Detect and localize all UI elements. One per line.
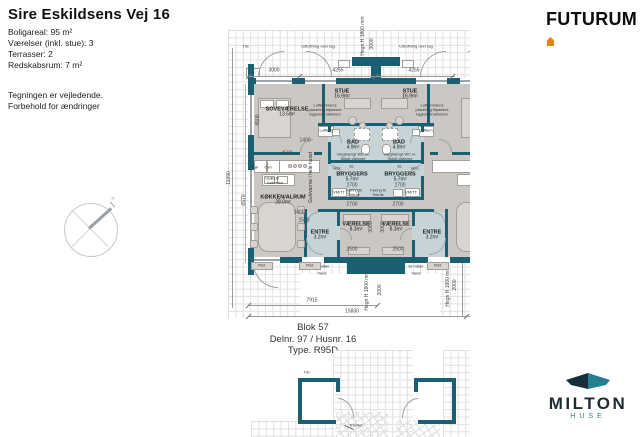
gulvvarme-note: Gulvvarme i hele huset — [307, 163, 315, 203]
wc-note-right: Væghængt WC m. Skjult cisterne — [380, 152, 420, 161]
page-title: Sire Eskildsens Vej 16 — [8, 6, 170, 23]
room-label-kitchen: KØKKEN/ALRUM28.0m² — [258, 194, 308, 205]
dim-line-right — [462, 263, 463, 316]
vand-right: Vand — [408, 271, 424, 276]
wall-entre-top — [376, 209, 434, 212]
coffee-table — [395, 116, 404, 125]
room-label-room-right: VÆRELSE8.3m² — [371, 221, 421, 232]
shed-right-wall-bottom — [418, 420, 456, 424]
shed-left-wall-bottom — [298, 420, 336, 424]
milton-logo: MILTON HUSE — [540, 372, 636, 421]
dim-line-bottom-2 — [248, 316, 470, 317]
vand-left: Vand — [314, 271, 330, 276]
el-right: EL — [390, 164, 410, 169]
chair — [297, 240, 305, 248]
spec-terrasser: Terrasser: 2 — [8, 49, 53, 59]
door-arc-terrace — [468, 51, 470, 77]
dim-3000-divider-top: 3000 — [368, 34, 376, 54]
dim-4255-right: 4255 — [403, 68, 425, 73]
chair — [250, 240, 258, 248]
room-label-livingroom-left: STUE16.9m² — [317, 88, 367, 99]
hob-ring — [293, 164, 297, 168]
grate-label: Rist. — [428, 263, 448, 268]
dim-4255-left: 4255 — [327, 68, 349, 73]
luftlem-note-right: Luftlemmens placering tilpasses tagkonst… — [412, 103, 452, 117]
room-label-utility-left: BRYGGERS5.7m² — [327, 171, 377, 182]
coffee-table — [348, 116, 357, 125]
dim-7915: 7915 — [301, 298, 323, 303]
el-left: EL — [342, 164, 362, 169]
hegn-label-bottom: Hegn H 1800 mm — [363, 271, 371, 311]
north-label: N — [110, 196, 116, 201]
wall-bedroom-kitchen — [430, 152, 438, 155]
wall-entre-room — [337, 240, 340, 257]
room-label-bath-left: BAD4.9m² — [328, 139, 378, 150]
dim-2500-right: 2500 — [387, 247, 409, 252]
door-arc-terrace — [420, 51, 446, 77]
shed-left-wall-top — [298, 378, 340, 382]
shed-left-wall-right — [336, 378, 340, 392]
dim-1500-entre: 1500 — [293, 218, 315, 223]
party-wall-bottom-flange — [347, 263, 405, 274]
foring-right: Føring til Teknik — [368, 188, 388, 197]
wall-bedroom-kitchen — [314, 152, 322, 155]
milton-boat-icon — [565, 372, 611, 390]
tromler-label: Tromler — [346, 423, 366, 428]
room-label-livingroom-right: STUE16.9m² — [385, 88, 435, 99]
dim-line-bottom-1 — [248, 305, 378, 306]
dim-4500-bedroom: 4500 — [254, 110, 262, 130]
grate-label: Rist. — [252, 263, 272, 268]
dim-3000-top: 3000 — [263, 68, 285, 73]
tilv-top: Tilv. — [240, 44, 252, 49]
kitchen-counter — [432, 160, 470, 173]
door-arc-terrace — [258, 51, 284, 77]
window — [256, 78, 292, 84]
milton-logo-text: MILTON — [540, 395, 636, 413]
oven-label: Ovn — [263, 165, 273, 170]
dim-2700-room-left: 2700 — [341, 202, 363, 207]
futurum-house-icon — [547, 37, 554, 46]
dim-15830: 15830 — [341, 309, 363, 314]
note-line-2: Forbehold for ændringer — [8, 101, 100, 111]
milton-logo-subtext: HUSE — [540, 413, 636, 421]
shed-right-wall-right — [452, 378, 456, 424]
wall-bottom — [376, 257, 470, 263]
hob-ring — [288, 164, 292, 168]
futurum-logo-text: FUTURUM — [546, 9, 637, 29]
udluftning-right: Udluftning over tag — [396, 44, 436, 49]
chair — [250, 223, 258, 231]
door-arc-terrace — [306, 51, 332, 77]
dishwasher-label: Opv — [264, 176, 274, 181]
tilv-shed: Tilv. — [301, 370, 313, 375]
spec-redskabsrum: Redskabsrum: 7 m² — [8, 60, 82, 70]
hegn-label-top: Hegn H 1800 mm — [359, 16, 367, 56]
room-label-utility-right: BRYGGERS5.7m² — [375, 171, 425, 182]
luftlem-left: Luftlem — [316, 128, 336, 133]
wc-note-left: Væghængt WC m. Skjult cisterne — [333, 152, 373, 161]
dim-2500-left: 2500 — [341, 247, 363, 252]
sofa — [344, 98, 371, 109]
grate-label: Rist. — [300, 263, 320, 268]
wall-entre-room — [412, 240, 415, 257]
drawing-sheet: Sire Eskildsens Vej 16 Boligareal: 95 m²… — [0, 0, 640, 437]
block-line-1: Blok 57 — [233, 322, 393, 334]
wall-utility-bottom — [331, 197, 376, 200]
block-line-2: Delnr. 97 / Husnr. 16 — [233, 334, 393, 346]
dim-2000-divider: 2000 — [376, 280, 384, 300]
fridge-label: Køl — [250, 165, 260, 170]
shed-right-wall-top — [414, 378, 456, 382]
sofa — [381, 98, 408, 109]
foring-left: Føring til Teknik — [344, 188, 364, 197]
dim-6570: 6570 — [240, 190, 248, 210]
room-label-bath-right: BAD4.9m² — [374, 139, 424, 150]
shed-left-wall-left — [298, 378, 302, 424]
dim-2000-right: 2000 — [451, 275, 459, 295]
spec-vaerelser: Værelser (inkl. stue): 3 — [8, 38, 94, 48]
dim-4500-kitchen: 4500 — [276, 151, 298, 156]
dim-1400-entre: 1400 — [288, 210, 310, 215]
dim-line-top — [248, 76, 455, 77]
spec-boligareal: Boligareal: 95 m² — [8, 27, 72, 37]
dining-table — [456, 202, 470, 252]
shed-right-wall-left — [414, 378, 418, 392]
hob-ring — [298, 164, 302, 168]
note-line-1: Tegningen er vejledende. — [8, 90, 103, 100]
dim-line-left-inner — [245, 84, 246, 263]
vmtt-right: VM/TT — [401, 190, 421, 195]
wall-utility-bottom — [376, 197, 421, 200]
kitchen-island — [457, 174, 470, 186]
dim-11990: 11990 — [225, 168, 233, 188]
udluftning-left: Udluftning over tag — [298, 44, 338, 49]
elmaaler-right: El-måler — [406, 264, 426, 269]
window — [305, 78, 336, 84]
wall-entre-top — [318, 209, 376, 212]
wall-bedroom-kitchen — [452, 152, 470, 155]
dim-2700-utility-right: 2700 — [389, 183, 411, 188]
dim-1400: 1400 — [294, 138, 316, 143]
window — [460, 78, 470, 84]
dim-2700-room-right: 2700 — [387, 202, 409, 207]
bed — [461, 98, 470, 138]
north-tick — [110, 202, 115, 208]
luftlem-right: Luftlem — [416, 128, 436, 133]
futurum-logo: FUTURUM — [546, 9, 640, 51]
luftlem-note-left: Luftlemmens placering tilpasses tagkonst… — [305, 103, 345, 117]
chair — [250, 206, 258, 214]
window — [416, 78, 447, 84]
